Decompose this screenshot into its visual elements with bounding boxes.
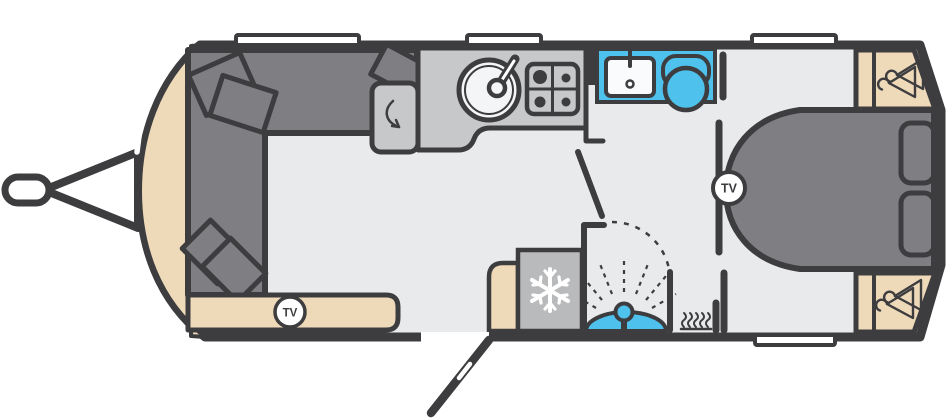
caravan-floorplan: TV xyxy=(0,0,950,420)
floorplan-svg: TV xyxy=(0,0,950,420)
fridge xyxy=(372,83,418,152)
hob-burner xyxy=(562,98,571,107)
toilet-icon xyxy=(663,56,709,110)
tv-point-bedroom: TV xyxy=(713,172,745,204)
tv-label: TV xyxy=(283,308,298,320)
window-top-3 xyxy=(752,35,836,45)
hob-burner xyxy=(533,70,547,84)
hob-burner xyxy=(535,97,546,108)
kitchen-sink-icon xyxy=(459,59,519,120)
tv-label: TV xyxy=(721,182,738,196)
entry-door xyxy=(421,332,489,413)
shower-head-icon xyxy=(616,304,633,321)
window-top-2 xyxy=(467,35,541,45)
window-bottom xyxy=(755,335,835,345)
fridge-door xyxy=(372,83,418,152)
window-top-1 xyxy=(236,35,359,45)
toilet-bowl xyxy=(665,68,707,110)
tap-base xyxy=(489,80,505,96)
front-window-dash xyxy=(143,66,150,94)
washroom-basin-icon xyxy=(606,50,654,96)
tow-hitch xyxy=(5,150,150,230)
hitch-coupler xyxy=(5,177,49,203)
front-window-dash xyxy=(136,240,140,262)
front-window-dash xyxy=(137,128,140,152)
tv-point-lounge: TV xyxy=(275,297,305,327)
freezer-unit xyxy=(518,250,582,331)
storage-cabinet xyxy=(489,263,518,331)
wardrobe-top xyxy=(856,50,935,109)
hob-icon xyxy=(527,64,578,114)
hitch-frame xyxy=(44,152,138,228)
front-window-dash xyxy=(142,270,149,291)
hob-burner xyxy=(562,74,571,83)
